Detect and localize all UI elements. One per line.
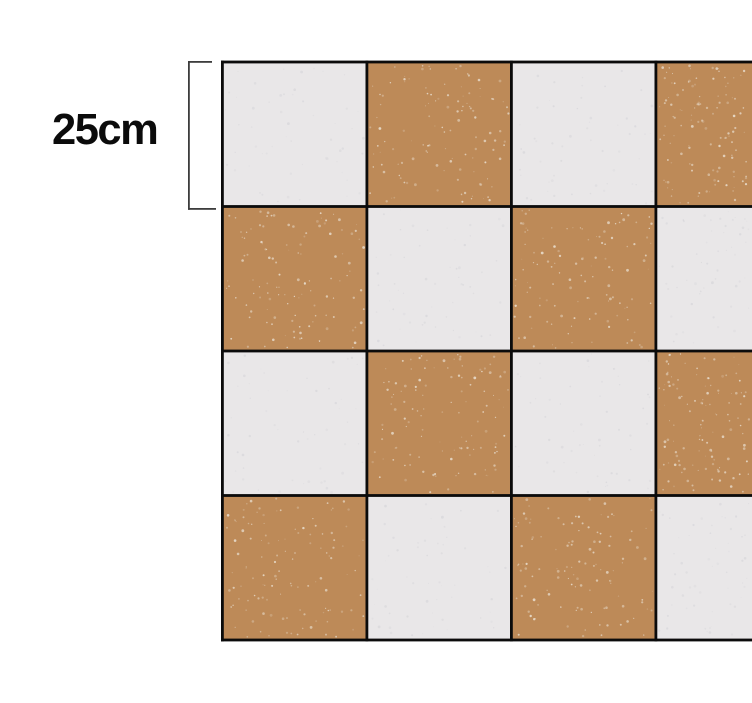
svg-text:25cm: 25cm — [52, 106, 157, 154]
